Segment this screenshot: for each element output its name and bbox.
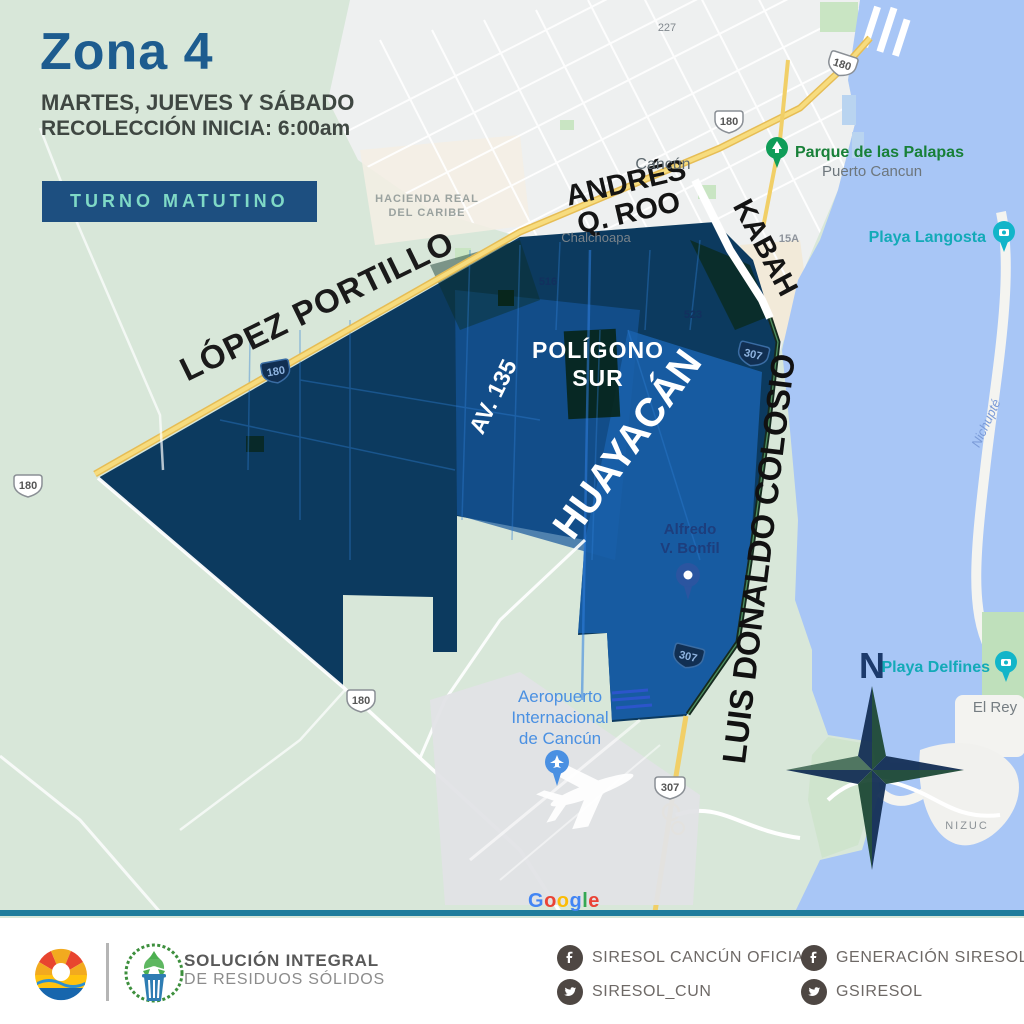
zone-dark-block [498,290,514,306]
page-title: Zona 4 [40,22,214,82]
facebook-icon [557,945,583,971]
poi-label-parque-palapas: Parque de las Palapas [795,144,964,161]
schedule-days: MARTES, JUEVES Y SÁBADO [41,90,354,116]
municipality-logo [25,938,97,1012]
svg-text:180: 180 [720,116,738,128]
road-label-516: 516 [539,276,557,288]
org-name-line2: DE RESIDUOS SÓLIDOS [184,971,385,989]
svg-text:307: 307 [661,782,679,794]
footer-separator [106,943,109,1001]
airport-label: Internacional [511,708,608,727]
road-label-523: 523 [684,309,702,321]
twitter-icon [557,979,583,1005]
zone-label-poligono: POLÍGONO [532,336,664,363]
place-label-bonfil: V. Bonfil [660,540,719,557]
place-label-puerto-cancun: Puerto Cancun [822,163,922,180]
google-logo: Google [528,890,600,913]
google-letter: g [570,890,583,913]
org-name-line1: SOLUCIÓN INTEGRAL [184,951,379,971]
google-letter: o [544,890,557,913]
place-label-cancun: Cancún [635,156,690,173]
poi-label-playa-delfines: Playa Delfines [882,659,991,676]
road-label-227: 227 [658,22,676,34]
google-letter: G [528,890,544,913]
place-label-hacienda: DEL CARIBE [388,207,465,219]
google-letter: o [557,890,570,913]
place-label-bonfil: Alfredo [664,521,717,538]
zone-label-sur: SUR [572,365,624,391]
social-handle: GENERACIÓN SIRESOL [836,949,1024,967]
place-label-chalchoapa: Chalchoapa [561,230,631,245]
facebook-icon [801,945,827,971]
place-label-hacienda: HACIENDA REAL [375,193,479,205]
map-bottom-divider [0,910,1024,916]
place-label-el-rey: El Rey [973,699,1018,716]
social-handle: SIRESOL CANCÚN OFICIAL [592,949,814,967]
place-label-nizuc: NIZUC [945,820,989,832]
infographic-canvas: N 180 180 180 180 180 [0,0,1024,1024]
collection-start-time: RECOLECCIÓN INICIA: 6:00am [41,117,350,141]
road-label-15a: 15A [779,233,799,245]
social-twitter-2[interactable]: GSIRESOL [801,979,923,1005]
airport-label: Aeropuerto [518,687,602,706]
google-letter: e [588,890,600,913]
poi-label-playa-langosta: Playa Langosta [869,229,986,246]
social-handle: GSIRESOL [836,983,923,1001]
svg-text:180: 180 [19,480,37,492]
twitter-icon [801,979,827,1005]
footer: SOLUCIÓN INTEGRAL DE RESIDUOS SÓLIDOS SI… [0,918,1024,1024]
social-facebook-2[interactable]: GENERACIÓN SIRESOL [801,945,1024,971]
airport-label: de Cancún [519,729,601,748]
svg-text:180: 180 [352,695,370,707]
shift-badge: TURNO MATUTINO [42,181,317,222]
siresol-logo [119,939,189,1011]
social-twitter-1[interactable]: SIRESOL_CUN [557,979,712,1005]
social-facebook-1[interactable]: SIRESOL CANCÚN OFICIAL [557,945,814,971]
social-handle: SIRESOL_CUN [592,983,712,1001]
